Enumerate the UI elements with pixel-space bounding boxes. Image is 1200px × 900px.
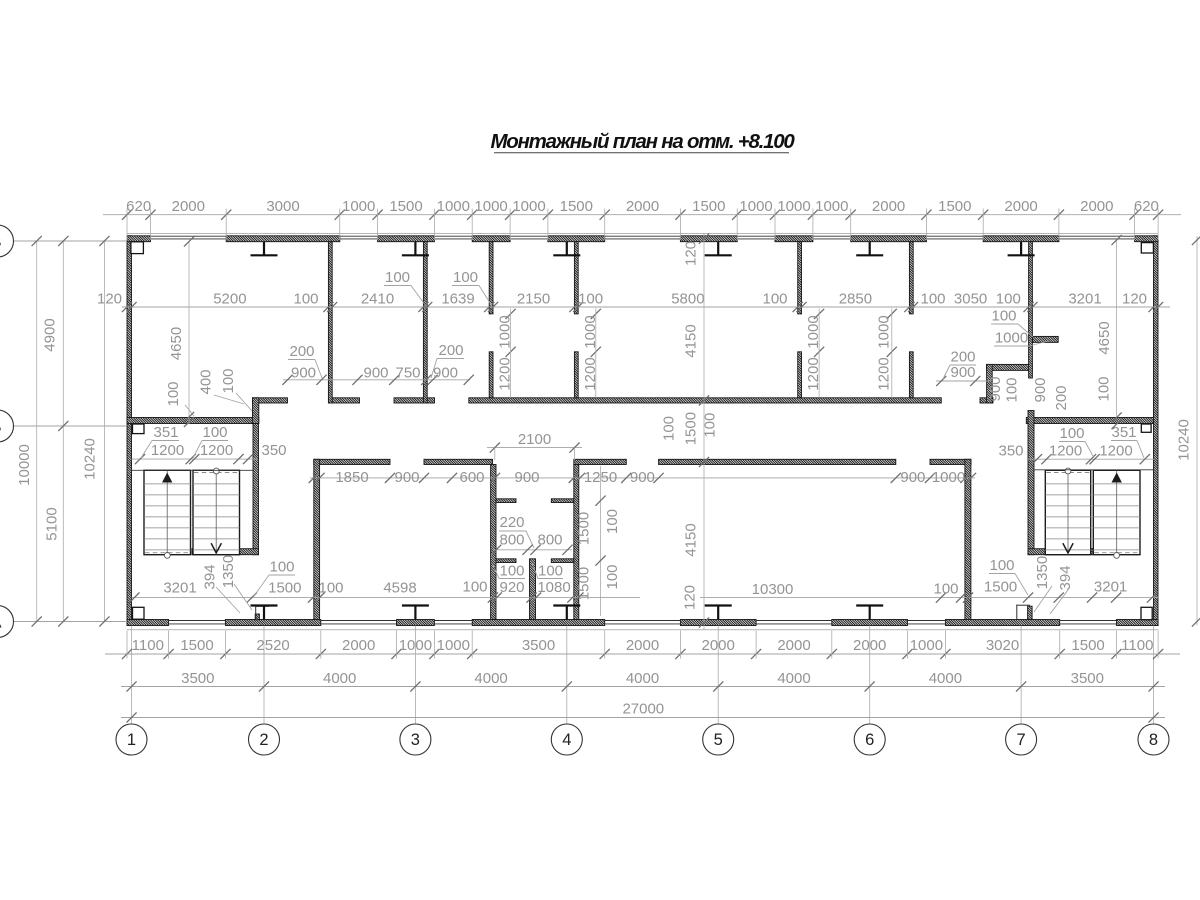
svg-text:900: 900 [900, 469, 925, 486]
svg-text:1850: 1850 [335, 469, 368, 486]
svg-text:3500: 3500 [522, 637, 555, 654]
svg-text:100: 100 [499, 563, 524, 580]
svg-text:4650: 4650 [1096, 321, 1113, 354]
svg-text:3000: 3000 [266, 198, 299, 215]
svg-text:220: 220 [499, 514, 524, 531]
svg-text:200: 200 [1053, 385, 1070, 410]
svg-text:2: 2 [259, 731, 268, 749]
svg-text:8: 8 [1149, 731, 1158, 749]
svg-text:100: 100 [996, 291, 1021, 308]
svg-text:10240: 10240 [81, 438, 98, 480]
svg-text:800: 800 [537, 532, 562, 549]
svg-text:394: 394 [202, 564, 219, 589]
svg-text:100: 100 [989, 557, 1014, 574]
svg-text:900: 900 [433, 364, 458, 381]
svg-text:100: 100 [702, 413, 719, 438]
svg-text:2150: 2150 [517, 291, 550, 308]
svg-text:100: 100 [220, 368, 237, 393]
svg-text:120: 120 [1122, 291, 1147, 308]
svg-text:1000: 1000 [342, 198, 375, 215]
svg-text:100: 100 [385, 269, 410, 286]
svg-text:120: 120 [682, 585, 699, 610]
svg-text:100: 100 [453, 269, 478, 286]
svg-text:1000: 1000 [739, 198, 772, 215]
svg-text:350: 350 [261, 442, 286, 459]
svg-text:1000: 1000 [474, 198, 507, 215]
svg-text:3050: 3050 [954, 291, 987, 308]
svg-text:3500: 3500 [1071, 670, 1104, 687]
svg-text:1200: 1200 [497, 357, 514, 390]
svg-text:1350: 1350 [220, 555, 237, 588]
svg-text:1500: 1500 [268, 580, 301, 597]
svg-text:4900: 4900 [42, 318, 59, 351]
svg-text:1500: 1500 [560, 198, 593, 215]
svg-text:2000: 2000 [626, 198, 659, 215]
svg-text:1000: 1000 [777, 198, 810, 215]
svg-text:200: 200 [950, 349, 975, 366]
svg-text:4000: 4000 [323, 670, 356, 687]
svg-text:2410: 2410 [361, 291, 394, 308]
svg-text:5: 5 [714, 731, 723, 749]
svg-text:900: 900 [950, 364, 975, 381]
svg-text:1500: 1500 [1071, 637, 1104, 654]
svg-text:1200: 1200 [200, 442, 233, 459]
svg-text:100: 100 [318, 580, 343, 597]
svg-text:900: 900 [987, 376, 1004, 401]
svg-text:900: 900 [514, 469, 539, 486]
svg-text:120: 120 [97, 291, 122, 308]
svg-text:100: 100 [604, 564, 621, 589]
svg-text:1000: 1000 [437, 198, 470, 215]
svg-text:4: 4 [562, 731, 571, 749]
svg-text:100: 100 [604, 509, 621, 534]
svg-text:1350: 1350 [1034, 556, 1051, 589]
svg-text:100: 100 [293, 291, 318, 308]
svg-text:2100: 2100 [518, 431, 551, 448]
svg-text:1500: 1500 [984, 579, 1017, 596]
svg-text:2000: 2000 [853, 637, 886, 654]
svg-text:120: 120 [683, 241, 700, 266]
svg-text:1500: 1500 [389, 198, 422, 215]
svg-text:5800: 5800 [671, 291, 704, 308]
svg-text:100: 100 [920, 291, 945, 308]
svg-text:800: 800 [499, 532, 524, 549]
svg-text:620: 620 [126, 198, 151, 215]
svg-text:3500: 3500 [181, 670, 214, 687]
svg-text:400: 400 [198, 369, 215, 394]
svg-text:1000: 1000 [399, 637, 432, 654]
svg-text:100: 100 [538, 563, 563, 580]
svg-text:100: 100 [165, 381, 182, 406]
svg-text:200: 200 [438, 342, 463, 359]
svg-text:5200: 5200 [213, 291, 246, 308]
svg-text:1500: 1500 [683, 412, 700, 445]
svg-text:2000: 2000 [1004, 198, 1037, 215]
svg-text:351: 351 [1111, 424, 1136, 441]
svg-text:4000: 4000 [626, 670, 659, 687]
svg-text:1200: 1200 [1049, 443, 1082, 460]
svg-text:7: 7 [1017, 731, 1026, 749]
svg-text:10240: 10240 [1175, 419, 1192, 461]
svg-text:100: 100 [202, 424, 227, 441]
svg-text:1: 1 [127, 731, 136, 749]
svg-text:100: 100 [762, 291, 787, 308]
svg-text:10300: 10300 [752, 581, 794, 598]
svg-text:1200: 1200 [875, 357, 892, 390]
svg-text:1500: 1500 [938, 198, 971, 215]
svg-text:2000: 2000 [872, 198, 905, 215]
svg-text:100: 100 [269, 559, 294, 576]
svg-text:4598: 4598 [383, 580, 416, 597]
svg-text:1000: 1000 [910, 637, 943, 654]
svg-text:100: 100 [1004, 377, 1021, 402]
svg-text:100: 100 [462, 579, 487, 596]
svg-text:1200: 1200 [582, 357, 599, 390]
svg-text:100: 100 [1095, 376, 1112, 401]
svg-text:2000: 2000 [172, 198, 205, 215]
svg-text:100: 100 [991, 308, 1016, 325]
svg-text:3201: 3201 [163, 580, 196, 597]
svg-text:600: 600 [459, 469, 484, 486]
svg-text:Монтажный план на отм. +8.100: Монтажный план на отм. +8.100 [490, 130, 795, 153]
svg-text:27000: 27000 [622, 701, 664, 718]
svg-text:100: 100 [933, 581, 958, 598]
svg-text:900: 900 [394, 469, 419, 486]
svg-text:2000: 2000 [1080, 198, 1113, 215]
svg-text:1200: 1200 [1099, 443, 1132, 460]
svg-text:1000: 1000 [437, 637, 470, 654]
svg-text:2000: 2000 [626, 637, 659, 654]
svg-text:900: 900 [1032, 377, 1049, 402]
svg-text:1000: 1000 [932, 469, 965, 486]
svg-text:350: 350 [998, 443, 1023, 460]
svg-text:200: 200 [289, 343, 314, 360]
svg-text:1000: 1000 [875, 315, 892, 348]
svg-text:4000: 4000 [474, 670, 507, 687]
svg-text:3020: 3020 [986, 637, 1019, 654]
svg-text:1200: 1200 [151, 442, 184, 459]
svg-text:900: 900 [630, 469, 655, 486]
svg-text:1000: 1000 [512, 198, 545, 215]
svg-text:750: 750 [395, 364, 420, 381]
svg-text:1000: 1000 [582, 315, 599, 348]
svg-text:4000: 4000 [929, 670, 962, 687]
svg-text:2000: 2000 [777, 637, 810, 654]
svg-text:3201: 3201 [1068, 291, 1101, 308]
svg-text:4150: 4150 [683, 324, 700, 357]
svg-text:1500: 1500 [692, 198, 725, 215]
svg-text:5100: 5100 [43, 507, 60, 540]
svg-text:1100: 1100 [132, 637, 164, 654]
svg-text:900: 900 [363, 364, 388, 381]
svg-text:1000: 1000 [995, 330, 1028, 347]
svg-text:1200: 1200 [805, 357, 822, 390]
svg-text:100: 100 [661, 416, 678, 441]
svg-text:4650: 4650 [168, 327, 185, 360]
svg-text:1000: 1000 [815, 198, 848, 215]
svg-text:1080: 1080 [537, 579, 570, 596]
svg-text:6: 6 [865, 731, 874, 749]
svg-text:1500: 1500 [576, 512, 593, 545]
svg-text:2520: 2520 [256, 637, 289, 654]
svg-text:394: 394 [1057, 565, 1074, 590]
svg-text:1500: 1500 [180, 637, 213, 654]
svg-text:3: 3 [411, 731, 420, 749]
svg-text:1000: 1000 [497, 315, 514, 348]
svg-text:2000: 2000 [342, 637, 375, 654]
svg-text:2850: 2850 [839, 291, 872, 308]
svg-text:351: 351 [153, 424, 178, 441]
svg-text:10000: 10000 [16, 444, 33, 486]
svg-text:1639: 1639 [441, 291, 474, 308]
svg-text:3201: 3201 [1094, 579, 1127, 596]
svg-text:100: 100 [578, 291, 603, 308]
svg-text:В: В [0, 234, 2, 251]
svg-text:920: 920 [499, 579, 524, 596]
svg-text:А: А [0, 615, 2, 632]
svg-text:2000: 2000 [702, 637, 735, 654]
svg-text:900: 900 [291, 364, 316, 381]
svg-text:620: 620 [1134, 198, 1159, 215]
svg-text:1500: 1500 [576, 567, 593, 600]
svg-text:Б: Б [0, 419, 2, 436]
svg-text:4150: 4150 [683, 523, 700, 556]
svg-text:100: 100 [1059, 425, 1084, 442]
svg-text:4000: 4000 [777, 670, 810, 687]
svg-text:1100: 1100 [1121, 637, 1153, 654]
svg-text:1000: 1000 [805, 315, 822, 348]
